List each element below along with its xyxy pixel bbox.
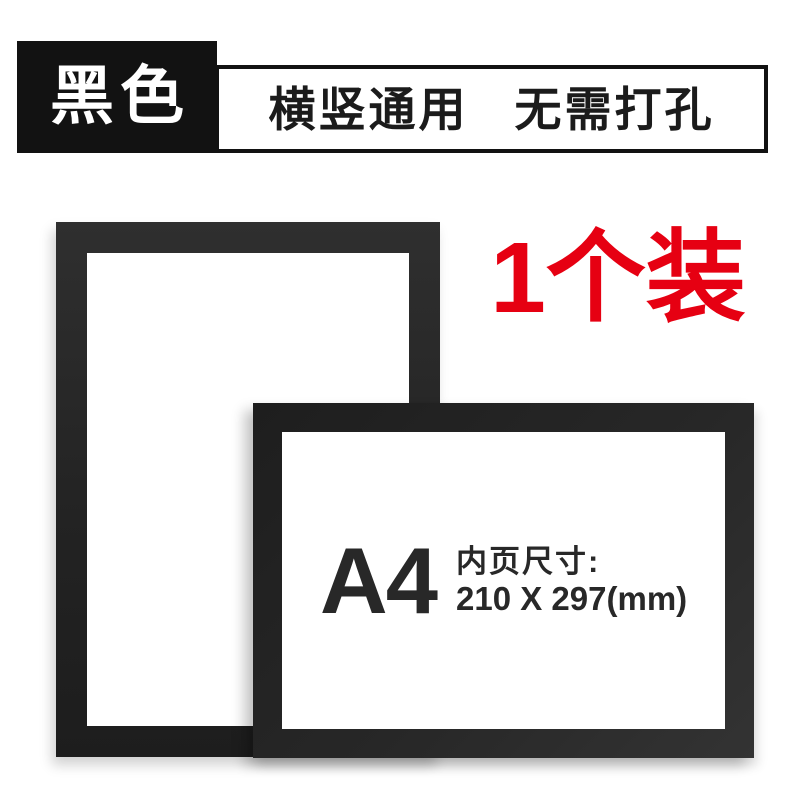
pack-count-label: 1个装 [478, 228, 758, 328]
color-badge: 黑色 [17, 41, 217, 153]
landscape-frame-inner: A4 内页尺寸: 210 X 297(mm) [282, 432, 725, 729]
feature-banner: 横竖通用 无需打孔 [215, 65, 768, 153]
color-badge-label: 黑色 [44, 65, 190, 129]
feature-text-orientation: 横竖通用 [269, 86, 469, 133]
inner-size-value: 210 X 297(mm) [456, 580, 687, 618]
landscape-frame: A4 内页尺寸: 210 X 297(mm) [253, 403, 754, 758]
inner-size-caption: 内页尺寸: [456, 543, 687, 580]
feature-text-no-drill: 无需打孔 [515, 86, 715, 133]
paper-size-label: A4 [320, 541, 436, 621]
inner-size-details: 内页尺寸: 210 X 297(mm) [456, 543, 687, 618]
product-image: 黑色 横竖通用 无需打孔 A4 内页尺寸: 210 X 297(mm) 1个装 [0, 0, 800, 800]
